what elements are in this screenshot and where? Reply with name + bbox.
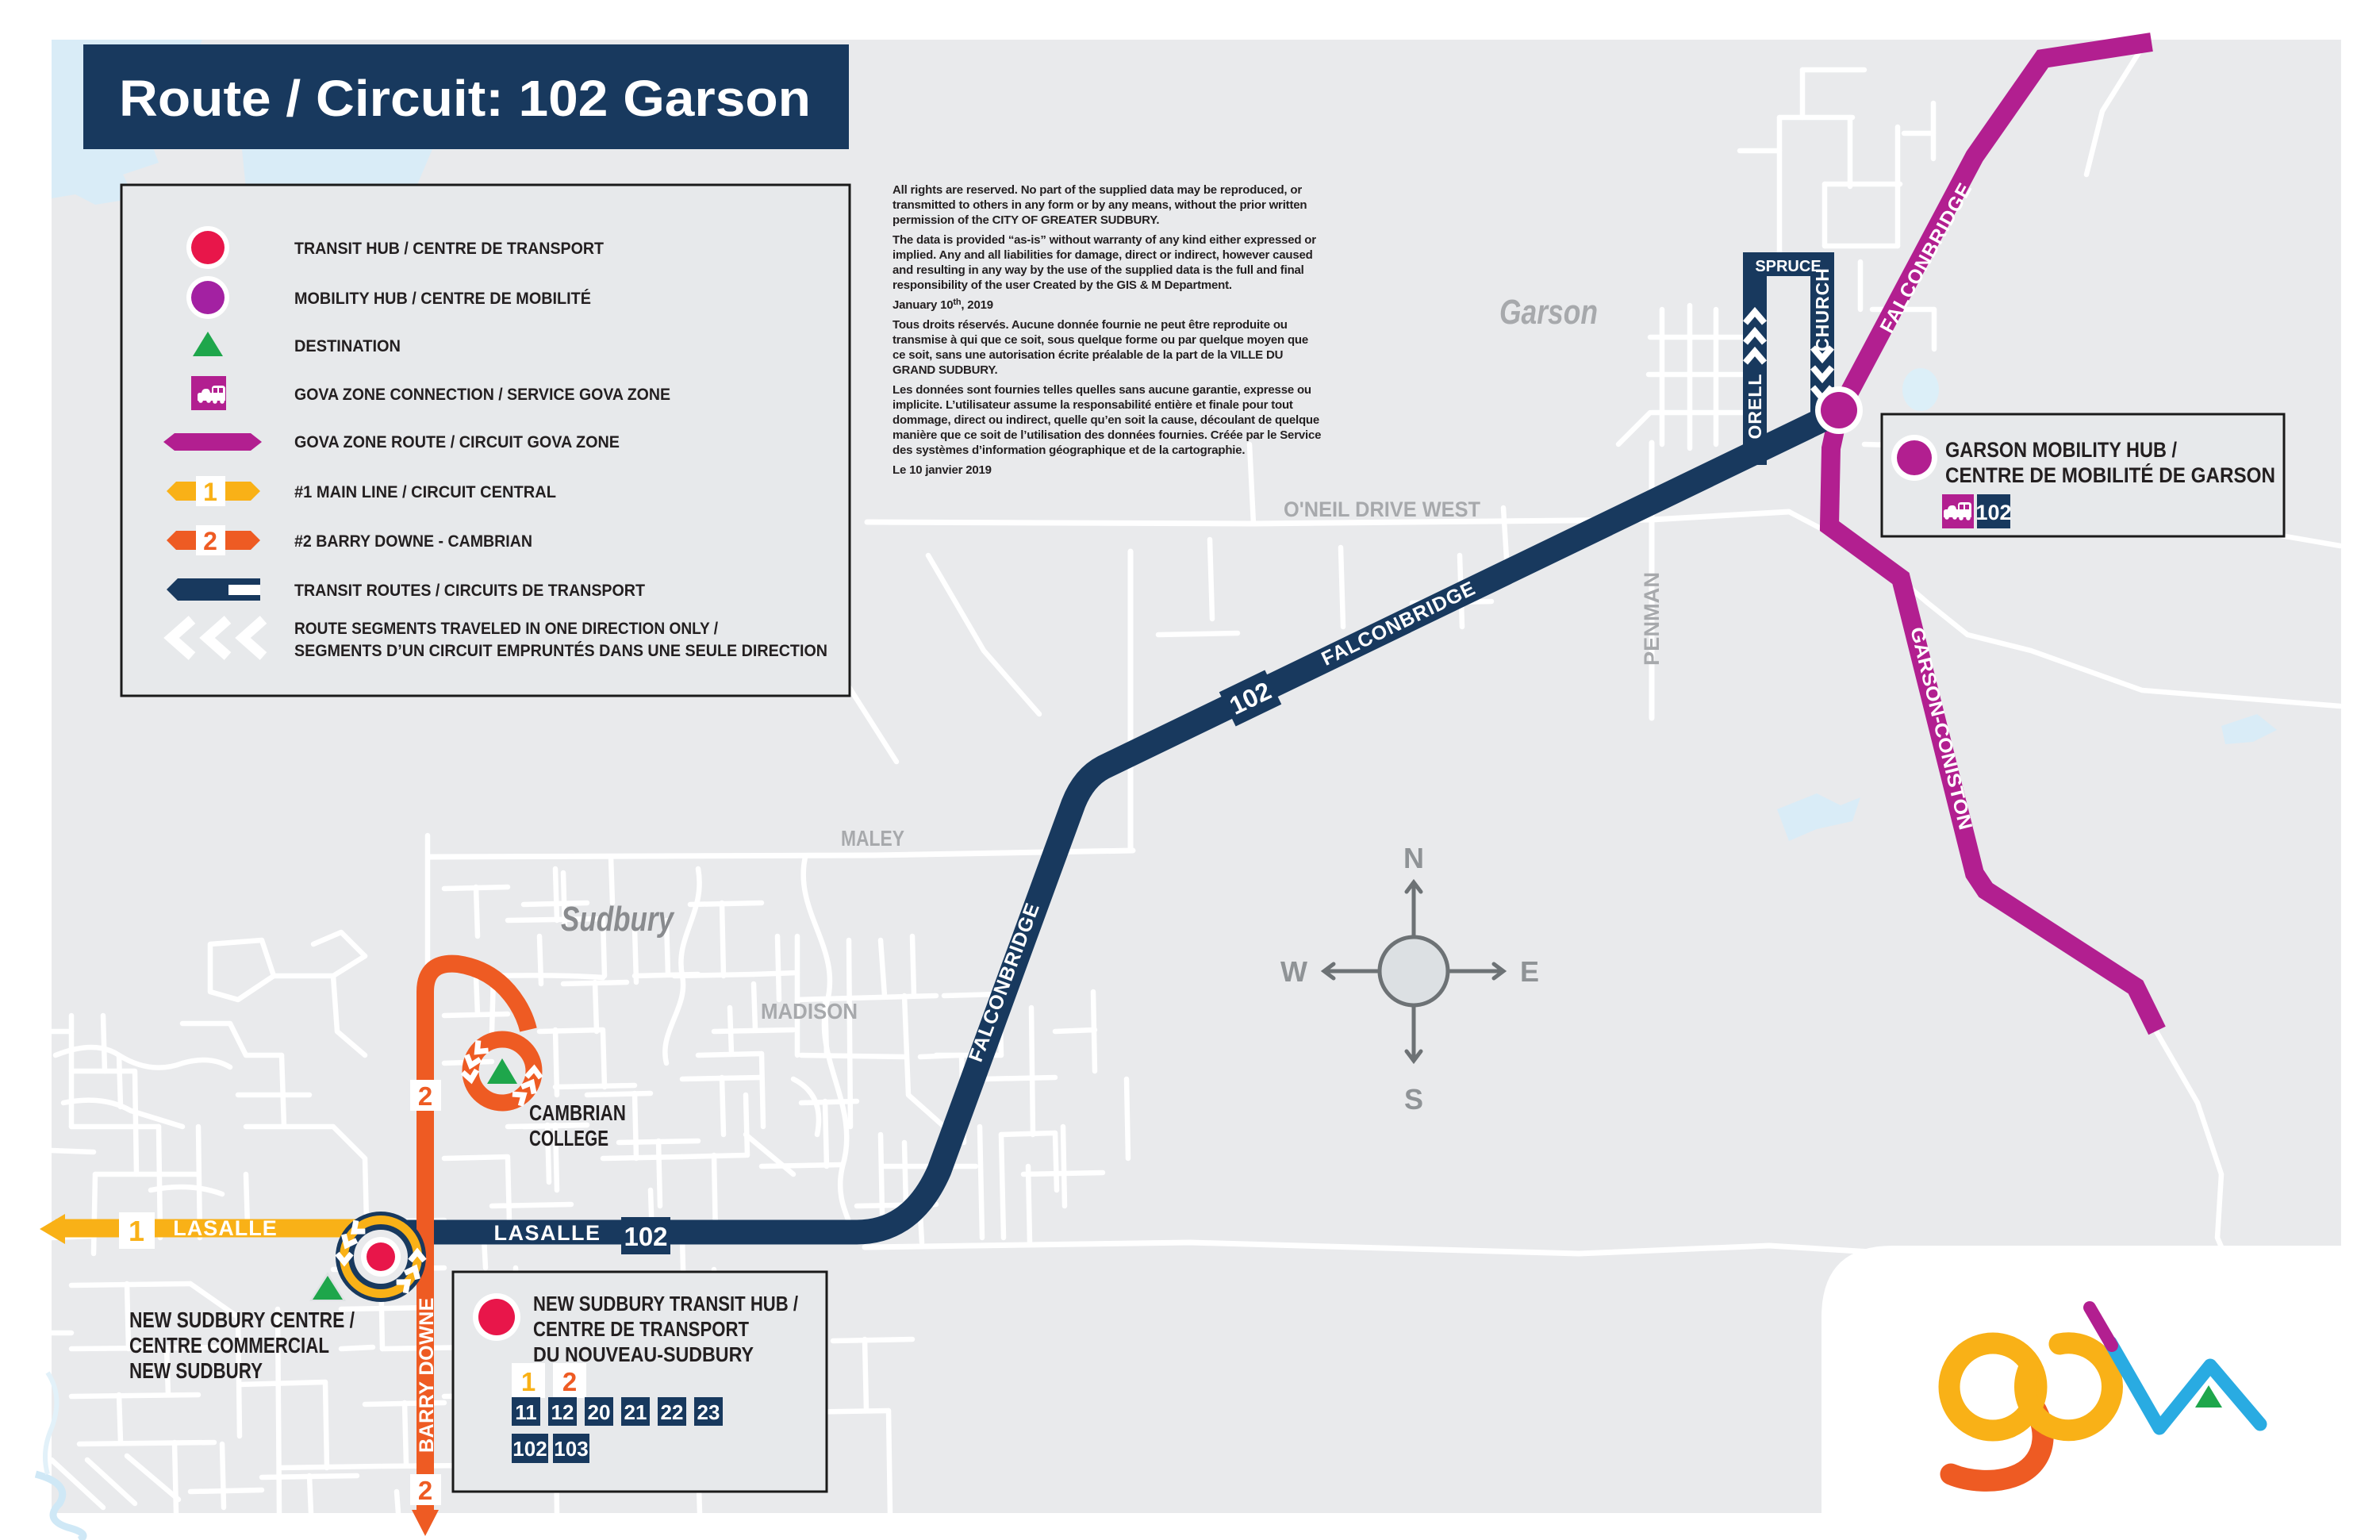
svg-text:NEW SUDBURY CENTRE /: NEW SUDBURY CENTRE / [129,1308,355,1332]
svg-text:CENTRE DE TRANSPORT: CENTRE DE TRANSPORT [533,1317,749,1341]
svg-text:January 10th, 2019: January 10th, 2019 [892,298,993,312]
svg-text:dommage, direct ou indirect, q: dommage, direct ou indirect, quelle qu’e… [892,413,1319,427]
svg-text:E: E [1520,955,1539,988]
svg-text:GRAND SUDBURY.: GRAND SUDBURY. [892,363,998,377]
svg-text:and resulting in any way by th: and resulting in any way by the use of t… [892,263,1304,277]
svg-text:102: 102 [624,1222,667,1251]
svg-text:Les données sont fournies tell: Les données sont fournies telles quelles… [892,383,1311,397]
svg-text:PENMAN: PENMAN [1640,572,1664,666]
svg-text:Sudbury: Sudbury [561,900,675,939]
svg-text:2: 2 [418,1081,432,1111]
svg-text:2: 2 [418,1476,432,1505]
svg-text:102: 102 [512,1437,547,1461]
svg-text:NEW SUDBURY TRANSIT HUB /: NEW SUDBURY TRANSIT HUB / [533,1292,798,1315]
svg-text:DESTINATION: DESTINATION [294,337,401,355]
svg-text:Route / Circuit: 102 Garson: Route / Circuit: 102 Garson [119,70,811,127]
svg-text:MOBILITY HUB / CENTRE DE MOBIL: MOBILITY HUB / CENTRE DE MOBILITÉ [294,290,591,308]
svg-text:1: 1 [129,1215,144,1247]
svg-text:manière que ce soit de l’utili: manière que ce soit de l’utilisation des… [892,428,1321,442]
svg-text:transmitted to others in any f: transmitted to others in any form or by … [892,198,1307,212]
svg-text:Garson: Garson [1499,293,1598,332]
svg-text:Le 10 janvier 2019: Le 10 janvier 2019 [892,463,992,477]
svg-text:MADISON: MADISON [761,999,858,1023]
svg-text:implicite. L’utilisateur assum: implicite. L’utilisateur assume la respo… [892,398,1293,412]
svg-text:CENTRE DE MOBILITÉ DE GARSON: CENTRE DE MOBILITÉ DE GARSON [1945,463,2275,487]
svg-text:BARRY DOWNE: BARRY DOWNE [416,1297,438,1453]
svg-text:2: 2 [562,1367,577,1396]
svg-text:1: 1 [521,1367,535,1396]
svg-text:LASALLE: LASALLE [173,1216,278,1240]
svg-text:GARSON MOBILITY HUB /: GARSON MOBILITY HUB / [1945,438,2177,462]
svg-text:SEGMENTS D’UN CIRCUIT EMPRUNTÉ: SEGMENTS D’UN CIRCUIT EMPRUNTÉS DANS UNE… [294,642,827,660]
svg-text:COLLEGE: COLLEGE [529,1126,608,1150]
svg-text:23: 23 [697,1400,720,1424]
svg-text:MALEY: MALEY [841,826,904,851]
svg-text:Tous droits réservés. Aucune d: Tous droits réservés. Aucune donnée four… [892,318,1288,332]
svg-text:103: 103 [554,1437,588,1461]
svg-text:ROUTE SEGMENTS TRAVELED IN ONE: ROUTE SEGMENTS TRAVELED IN ONE DIRECTION… [294,620,718,638]
svg-text:102: 102 [1975,501,2011,524]
svg-text:TRANSIT ROUTES / CIRCUITS DE T: TRANSIT ROUTES / CIRCUITS DE TRANSPORT [294,582,645,600]
svg-text:LASALLE: LASALLE [494,1221,601,1245]
svg-text:20: 20 [588,1400,611,1424]
svg-text:permission of the CITY OF GREA: permission of the CITY OF GREATER SUDBUR… [892,213,1159,227]
svg-text:11: 11 [515,1400,537,1424]
svg-text:2: 2 [203,527,217,555]
svg-text:CENTRE COMMERCIAL: CENTRE COMMERCIAL [129,1333,329,1358]
svg-text:DU NOUVEAU-SUDBURY: DU NOUVEAU-SUDBURY [533,1342,754,1366]
svg-text:implied. Any and all liabiliti: implied. Any and all liabilities for dam… [892,248,1313,262]
svg-text:ORELL: ORELL [1745,374,1765,440]
svg-text:transmise à qui que ce soit, s: transmise à qui que ce soit, sous quelqu… [892,333,1308,347]
svg-text:O'NEIL DRIVE WEST: O'NEIL DRIVE WEST [1284,497,1480,521]
svg-text:12: 12 [551,1400,574,1424]
svg-text:#2 BARRY DOWNE - CAMBRIAN: #2 BARRY DOWNE - CAMBRIAN [294,532,532,551]
svg-text:1: 1 [203,478,217,506]
svg-text:All rights are reserved. No pa: All rights are reserved. No part of the … [892,183,1302,197]
svg-text:#1 MAIN LINE / CIRCUIT CENTRAL: #1 MAIN LINE / CIRCUIT CENTRAL [294,483,556,501]
svg-text:responsibility of the user Cre: responsibility of the user Created by th… [892,278,1232,292]
svg-text:W: W [1280,955,1307,988]
svg-text:S: S [1404,1083,1423,1116]
svg-text:N: N [1403,842,1424,874]
svg-text:CHURCH: CHURCH [1812,267,1833,351]
svg-text:CAMBRIAN: CAMBRIAN [529,1100,626,1125]
svg-text:The data is provided “as-is” w: The data is provided “as-is” without war… [892,233,1316,247]
svg-text:22: 22 [661,1400,684,1424]
svg-text:GOVA ZONE CONNECTION / SERVICE: GOVA ZONE CONNECTION / SERVICE GOVA ZONE [294,386,670,404]
svg-text:des systèmes d’information géo: des systèmes d’information géographique … [892,444,1245,457]
svg-text:GOVA ZONE ROUTE / CIRCUIT GOV: GOVA ZONE ROUTE / CIRCUIT GOVA ZONE [294,433,620,451]
svg-text:NEW SUDBURY: NEW SUDBURY [129,1358,263,1383]
svg-text:21: 21 [624,1400,647,1424]
svg-text:TRANSIT HUB / CENTRE DE TRANSP: TRANSIT HUB / CENTRE DE TRANSPORT [294,240,604,258]
svg-text:ce soit, sans une autorisation: ce soit, sans une autorisation écrite pr… [892,348,1283,362]
